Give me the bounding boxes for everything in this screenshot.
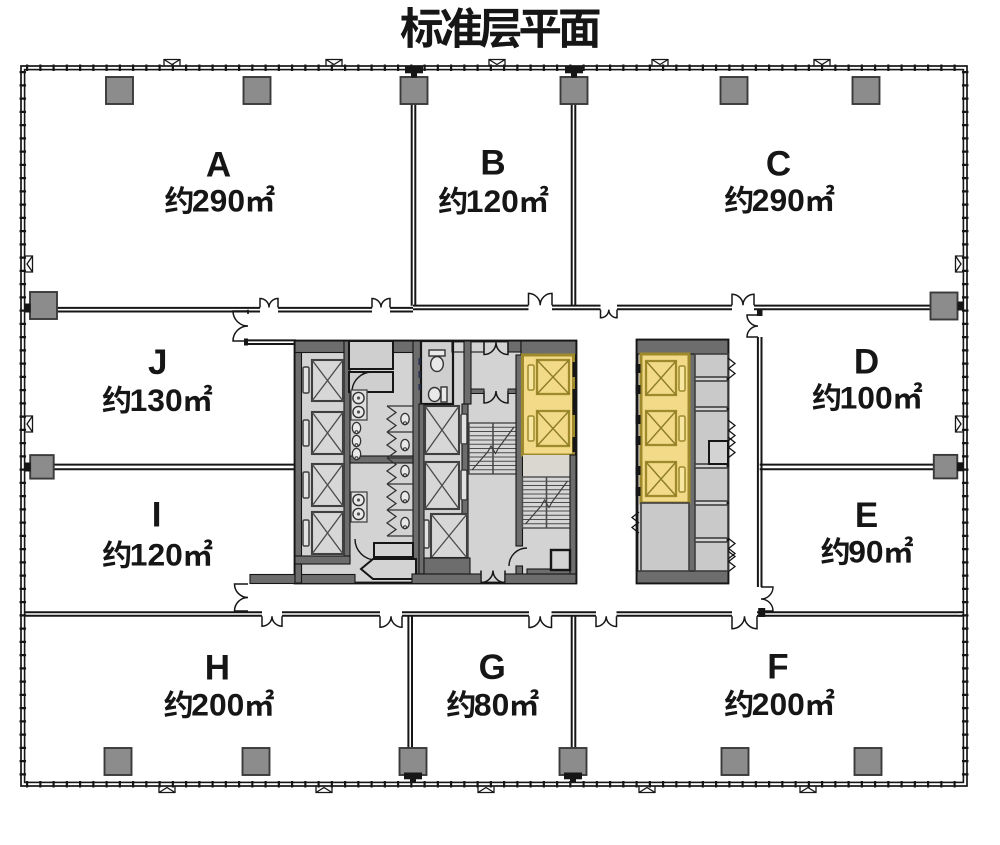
svg-text:H: H [205,649,230,688]
svg-text:90: 90 [848,534,883,570]
svg-text:200: 200 [752,686,805,722]
svg-text:80: 80 [474,687,509,723]
svg-text:100: 100 [840,380,893,416]
svg-text:D: D [854,343,879,382]
svg-text:120: 120 [130,537,183,573]
svg-text:I: I [152,496,162,535]
svg-text:B: B [480,144,505,183]
svg-text:J: J [148,343,167,382]
svg-text:290: 290 [752,182,805,218]
svg-text:A: A [206,146,231,185]
svg-text:F: F [767,648,788,687]
svg-text:290: 290 [192,183,245,219]
svg-text:G: G [479,648,506,687]
svg-text:130: 130 [130,382,183,418]
svg-text:C: C [766,145,791,184]
svg-text:E: E [855,496,878,535]
svg-text:120: 120 [466,183,519,219]
svg-text:200: 200 [191,687,244,723]
